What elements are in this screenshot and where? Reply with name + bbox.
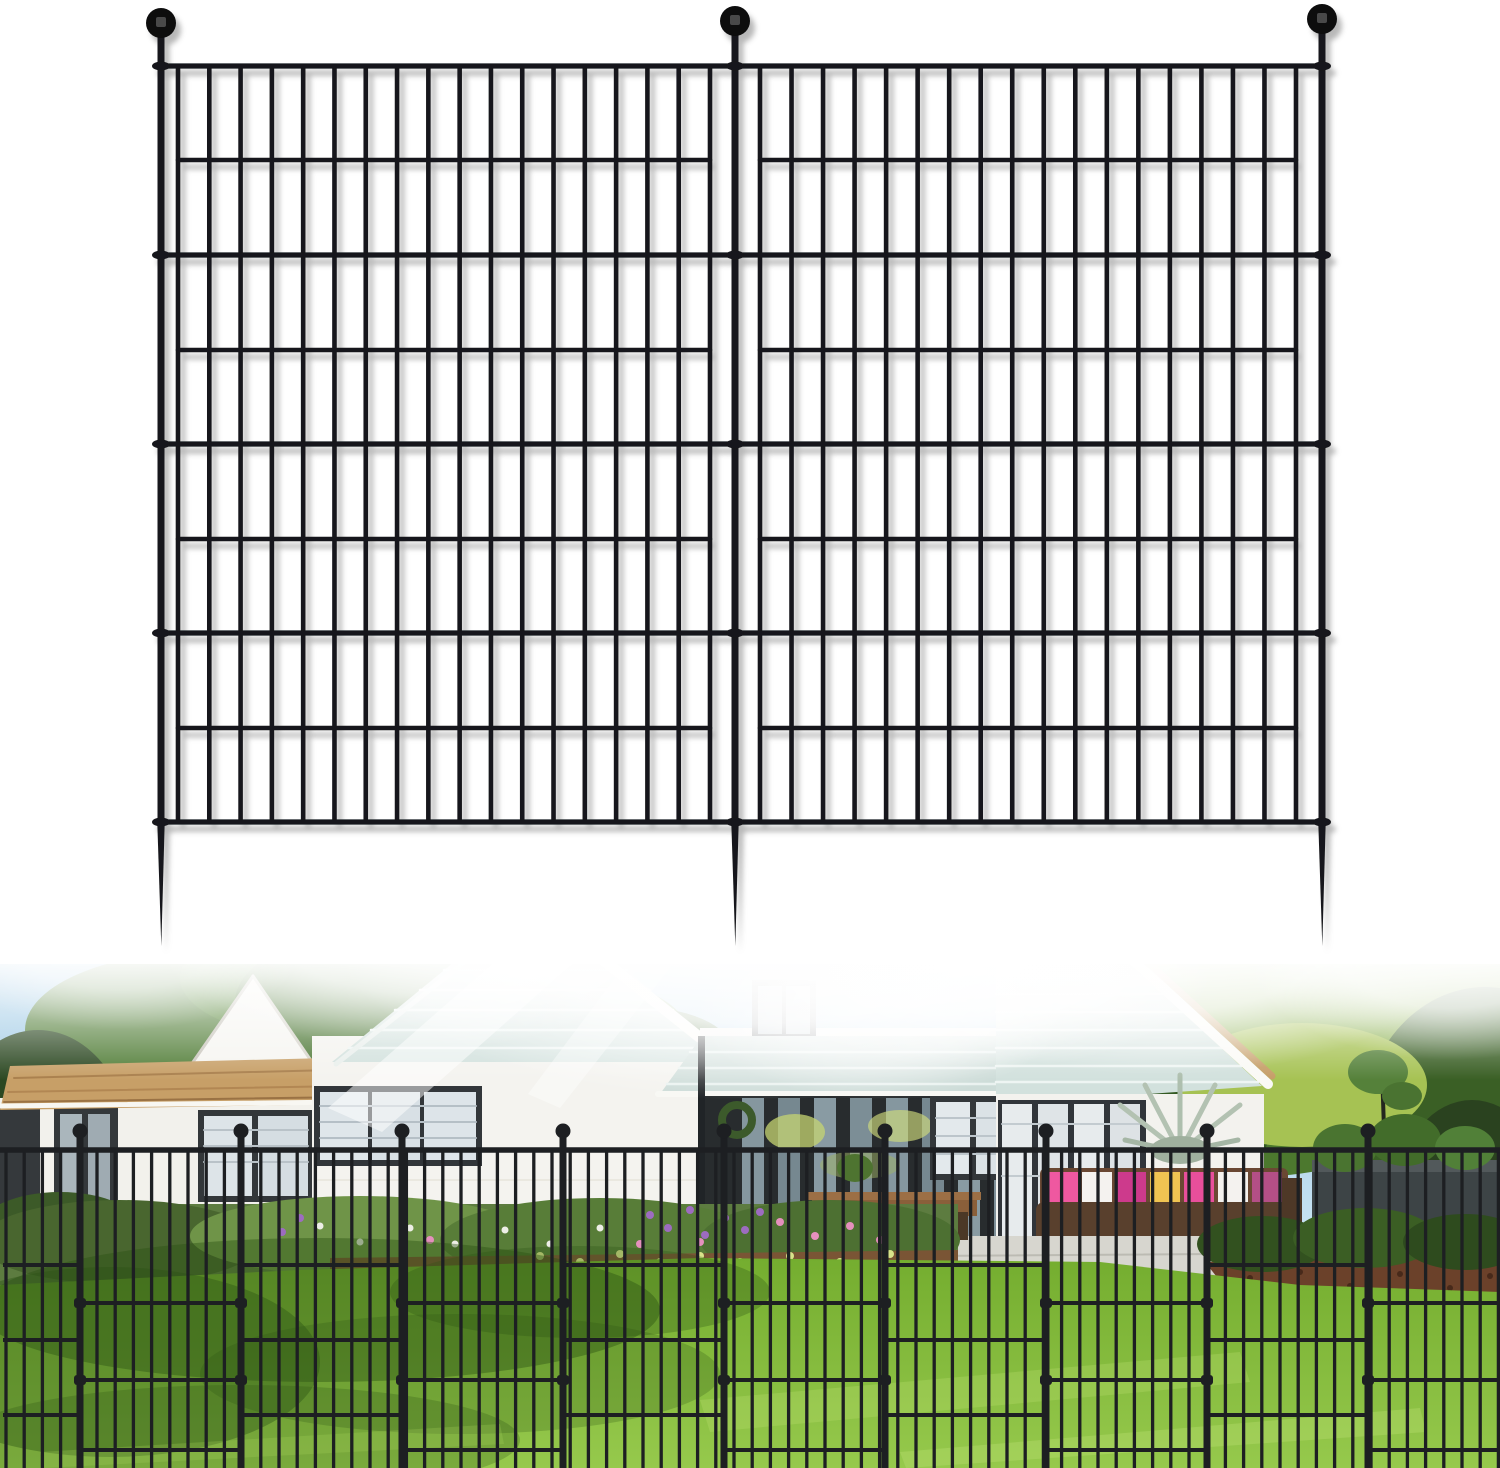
product-image-canvas: [0, 0, 1500, 1468]
product-fence-post-2: [720, 6, 750, 946]
product-fence: [146, 4, 1337, 946]
product-fence-post-3: [1307, 4, 1337, 946]
ground-spike: [1318, 826, 1325, 946]
product-fence-post-1: [146, 8, 176, 946]
white-fade: [0, 760, 1500, 1132]
fence-product-photo: [0, 0, 1500, 1468]
ground-spike: [731, 826, 738, 946]
lifestyle-photo: [0, 760, 1500, 1468]
ground-spike: [157, 826, 164, 946]
